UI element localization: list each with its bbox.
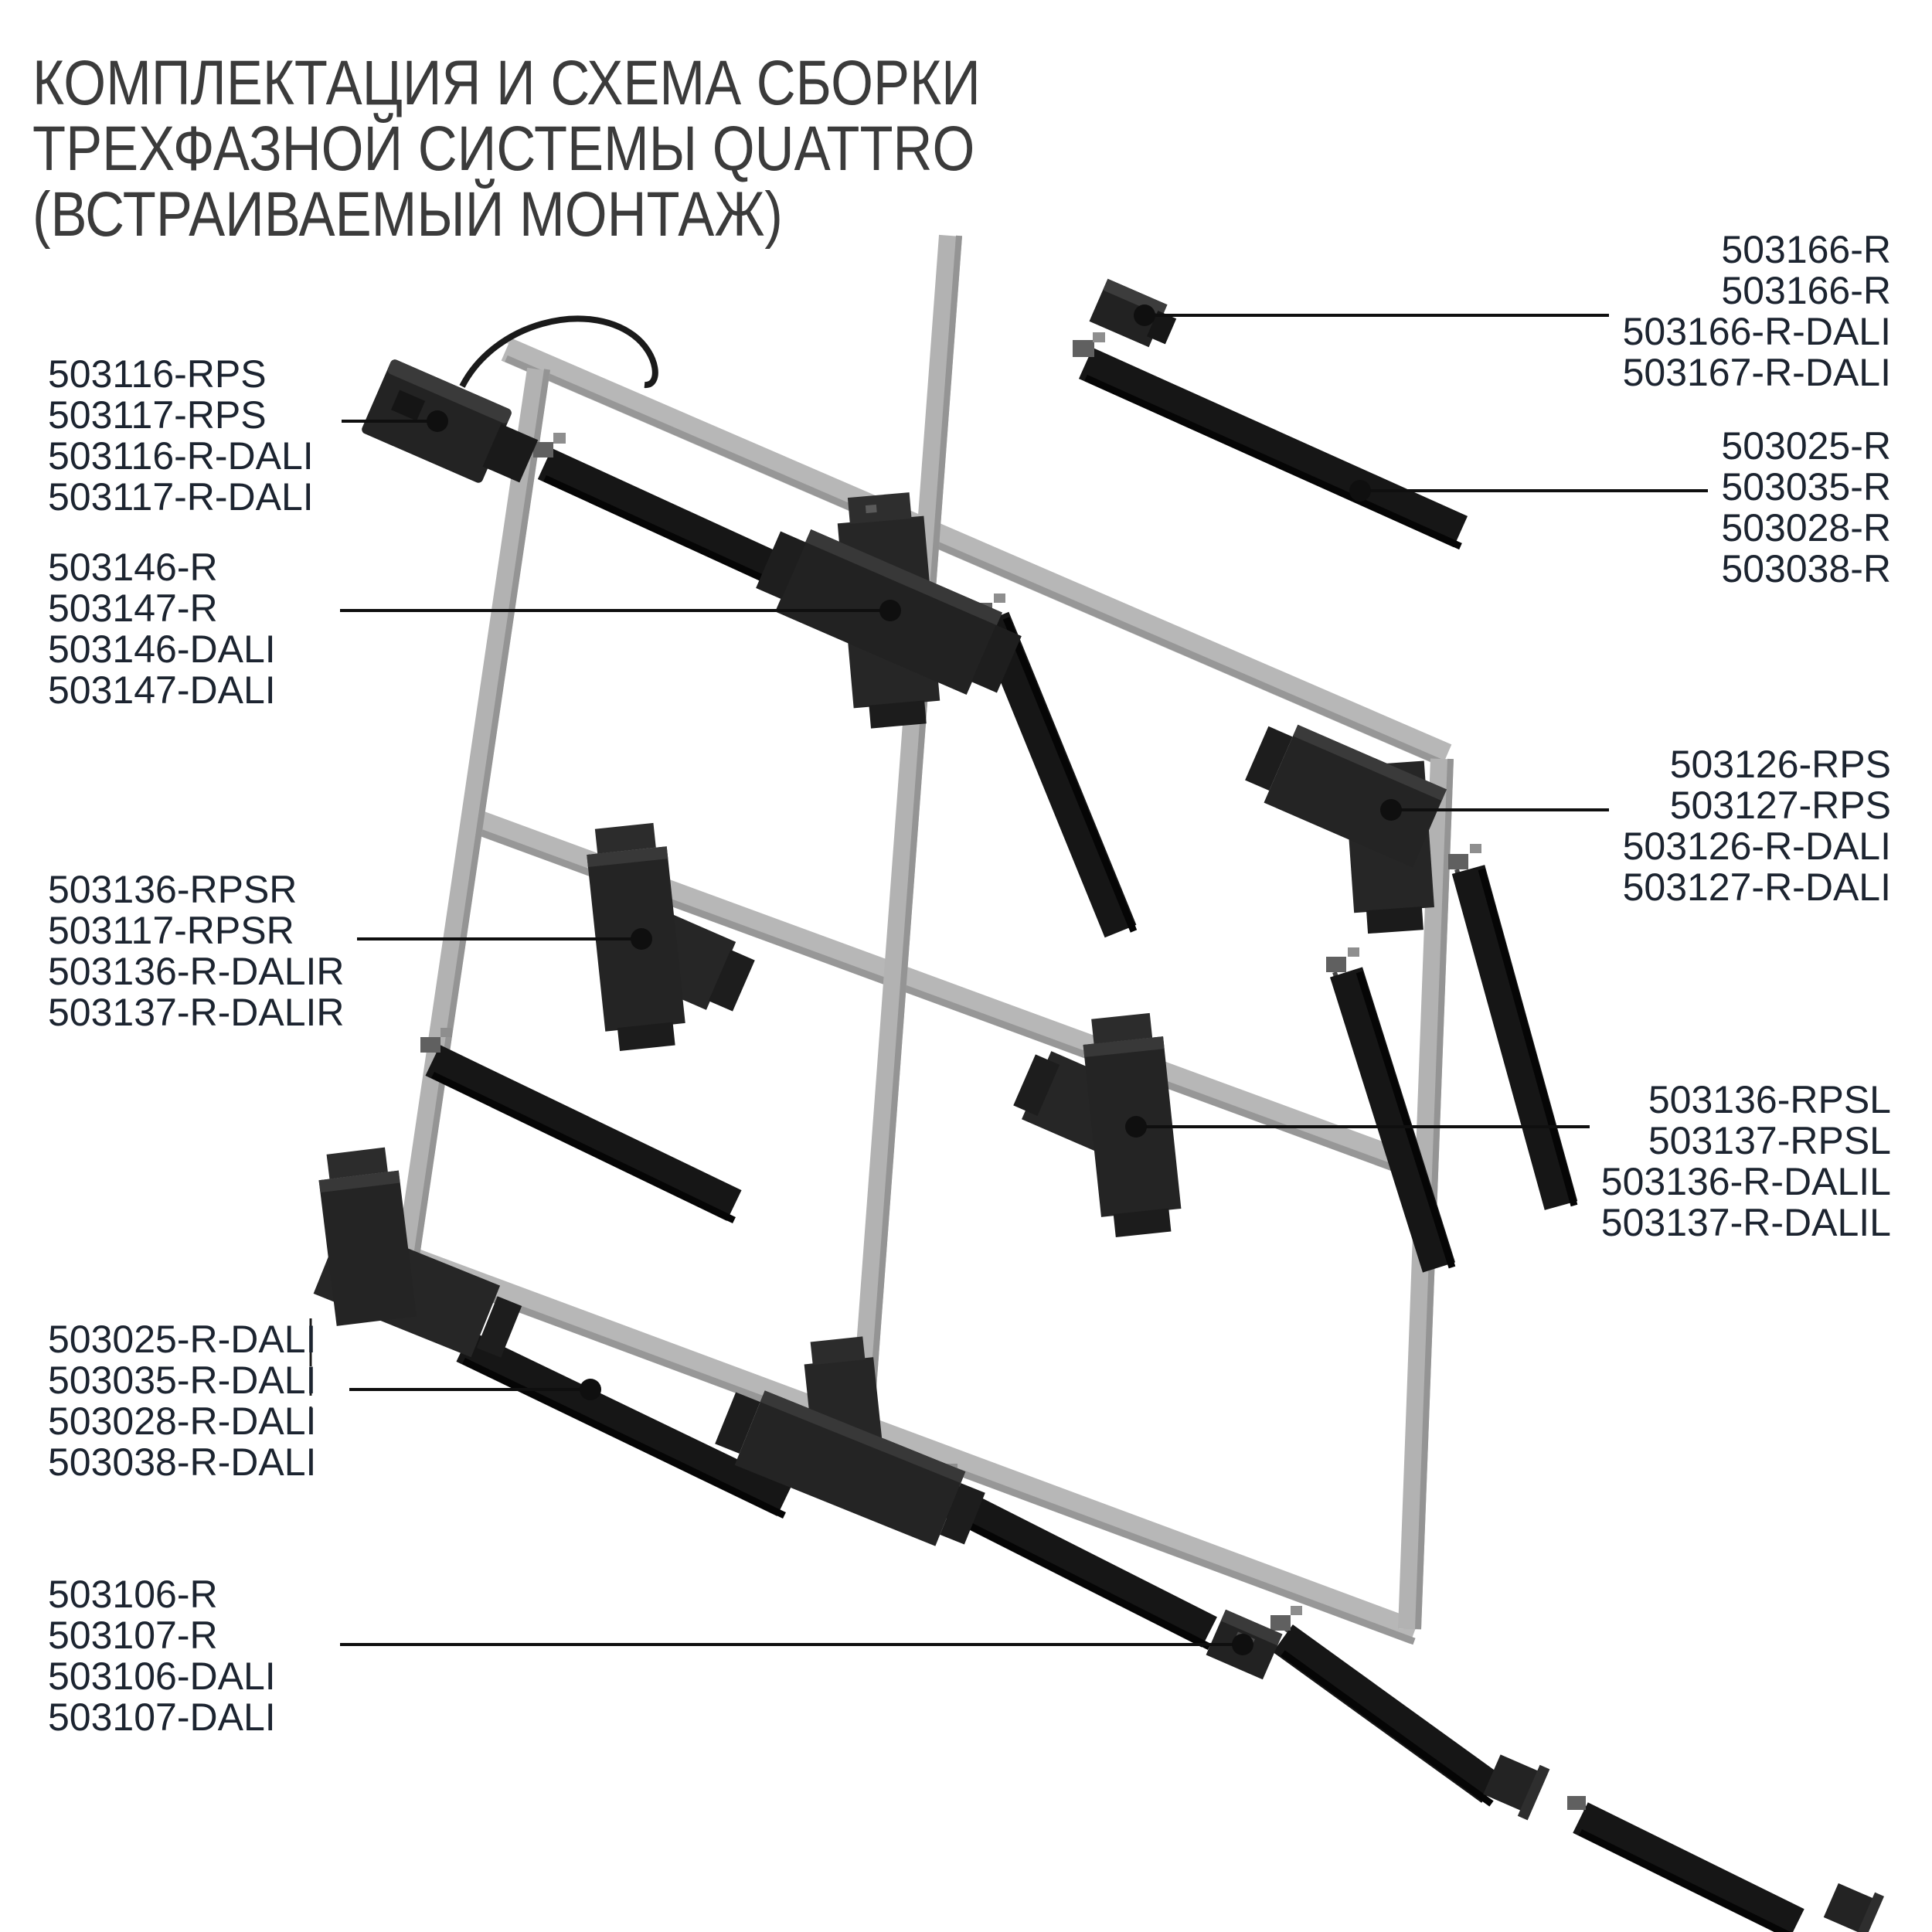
t-connector-left-feed [1013,1013,1181,1237]
assembly-scheme-page: КОМПЛЕКТАЦИЯ И СХЕМА СБОРКИ ТРЕХФАЗНОЙ С… [0,0,1932,1932]
part-number: 503025-R-DALI [48,1318,316,1361]
end-cap-1 [1483,1754,1549,1820]
part-number: 503038-R-DALI [48,1440,316,1484]
label-group-corner-right: 503126-RPS 503127-RPS 503126-R-DALI 5031… [1623,743,1891,909]
label-group-power-feed: 503116-RPS 503117-RPS 503116-R-DALI 5031… [48,352,314,519]
part-number: 503116-RPS [48,352,267,396]
part-number: 503035-R [1721,465,1891,509]
part-number: 503106-DALI [48,1655,276,1698]
leader-joiner-bottom [340,1634,1253,1655]
part-number: 503166-R [1721,228,1891,271]
end-cap-2 [1824,1883,1884,1932]
part-number: 503137-RPSL [1648,1119,1891,1162]
part-number: 503106-R [48,1573,218,1616]
part-number: 503126-RPS [1670,743,1891,786]
part-number: 503107-DALI [48,1696,276,1739]
title-line-1: КОМПЛЕКТАЦИЯ И СХЕМА СБОРКИ [32,48,981,118]
track-segment-right-upper [1448,844,1574,1206]
part-number: 503117-RPS [48,393,267,437]
part-number: 503127-RPS [1670,784,1891,827]
t-connector-bottom [715,1336,985,1546]
page-title: КОМПЛЕКТАЦИЯ И СХЕМА СБОРКИ ТРЕХФАЗНОЙ С… [32,48,981,250]
part-number: 503147-DALI [48,668,276,712]
label-group-t-left-feed: 503136-RPSL 503137-RPSL 503136-R-DALIL 5… [1601,1078,1891,1244]
part-number: 503126-R-DALI [1623,825,1891,868]
label-group-joiner-bottom: 503106-R 503107-R 503106-DALI 503107-DAL… [48,1573,276,1739]
track-segment-top-right [1073,332,1461,546]
part-number: 503137-R-DALIR [48,991,345,1034]
track-segment-detached-1 [1270,1606,1492,1804]
label-group-t-right-feed: 503136-RPSR 503117-RPSR 503136-R-DALIR 5… [48,868,345,1034]
part-number: 503025-R [1721,424,1891,468]
t-connector-right-feed [587,823,754,1051]
title-line-2: ТРЕХФАЗНОЙ СИСТЕМЫ QUATTRO [32,113,975,184]
part-number: 503167-R-DALI [1623,351,1891,394]
part-number: 503116-R-DALI [48,434,314,478]
part-number: 503117-RPSR [48,909,294,952]
label-group-track-top: 503025-R 503035-R 503028-R 503038-R [1721,424,1891,590]
part-number: 503038-R [1721,547,1891,590]
part-number: 503136-RPSL [1648,1078,1891,1121]
part-number: 503146-DALI [48,628,276,671]
leader-mini-joiner-top [1134,304,1609,326]
part-number: 503028-R-DALI [48,1400,316,1443]
part-number: 503107-R [48,1614,218,1657]
label-group-x-connector: 503146-R 503147-R 503146-DALI 503147-DAL… [48,546,276,712]
part-number: 503117-R-DALI [48,475,314,519]
part-number: 503127-R-DALI [1623,866,1891,909]
title-line-3: (ВСТРАИВАЕМЫЙ МОНТАЖ) [32,179,783,250]
assembly-diagram: КОМПЛЕКТАЦИЯ И СХЕМА СБОРКИ ТРЕХФАЗНОЙ С… [0,0,1932,1932]
track-segment-mid-left [420,1028,734,1220]
part-number: 503147-R [48,587,218,630]
label-group-mini-joiner-top: 503166-R 503166-R 503166-R-DALI 503167-R… [1623,228,1891,394]
label-group-track-dali: 503025-R-DALI 503035-R-DALI 503028-R-DAL… [48,1318,316,1484]
track-segment-detached-2 [1567,1796,1797,1932]
part-number: 503136-RPSR [48,868,297,911]
part-number: 503166-R [1721,269,1891,312]
part-number: 503166-R-DALI [1623,310,1891,353]
part-number: 503136-R-DALIL [1601,1160,1891,1203]
part-number: 503136-R-DALIR [48,950,345,993]
part-number: 503146-R [48,546,218,589]
part-number: 503035-R-DALI [48,1359,316,1402]
part-number: 503137-R-DALIL [1601,1201,1891,1244]
part-number: 503028-R [1721,506,1891,549]
